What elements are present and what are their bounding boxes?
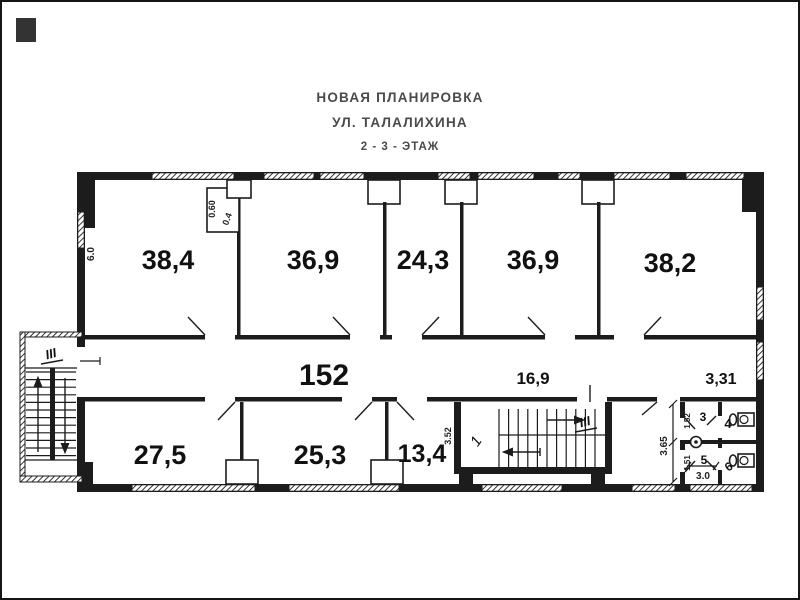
stair-pier <box>459 467 473 484</box>
door-swing <box>188 317 205 335</box>
stair-pier <box>591 467 605 484</box>
door-swing <box>397 402 414 420</box>
wc-block <box>669 400 756 486</box>
room-area-label: 27,5 <box>134 440 187 470</box>
stair-divider <box>50 368 55 460</box>
corridor-area-label: 152 <box>299 359 349 392</box>
pilaster <box>227 180 251 198</box>
floor-plan-page: НОВАЯ ПЛАНИРОВКА УЛ. ТАЛАЛИХИНА 2 - 3 - … <box>0 0 800 600</box>
room-area-label: 38,4 <box>142 245 195 275</box>
dimension-label: 1.52 <box>683 413 692 429</box>
landing-number: 1 <box>467 433 486 450</box>
door-swing <box>422 317 439 335</box>
room-area-label: 36,9 <box>287 245 340 275</box>
door-swing <box>355 402 372 420</box>
door-swing <box>707 416 716 425</box>
dimension-label: 3.52 <box>443 427 453 445</box>
window <box>686 173 744 179</box>
room-area-label: 13,4 <box>398 440 447 468</box>
corner-pier-top-right <box>742 180 756 212</box>
window <box>482 485 562 491</box>
window <box>478 173 534 179</box>
dimension-label: 3.65 <box>659 436 670 456</box>
labels: 38,4 36,9 24,3 36,9 38,2 152 16,9 3,31 2… <box>41 200 737 482</box>
wc-cell-number: 3 <box>700 410 707 424</box>
door-swing <box>528 317 545 335</box>
pilaster <box>226 460 258 484</box>
staircase-number: III <box>578 413 593 430</box>
room-area-label: 38,2 <box>644 248 697 278</box>
dimension-label: 6.0 <box>86 247 97 261</box>
scan-artifact <box>16 18 36 42</box>
dimension-line <box>669 400 677 486</box>
corner-pier-bottom-left <box>85 462 93 484</box>
window <box>438 173 470 179</box>
room-area-label: 36,9 <box>507 245 560 275</box>
window <box>320 173 364 179</box>
door-swing <box>218 402 235 420</box>
wc-cell-number: 5 <box>701 453 708 467</box>
toilet-icon <box>730 454 755 467</box>
window <box>690 485 752 491</box>
window <box>632 485 675 491</box>
window <box>132 485 255 491</box>
wc-hall-area-label: 3,31 <box>705 371 736 388</box>
dimension-label: 3.0 <box>696 471 710 482</box>
door-swing <box>642 402 657 415</box>
pilaster <box>445 180 477 204</box>
corridor-walls <box>80 335 756 402</box>
window <box>614 173 670 179</box>
floor-plan-drawing: 38,4 36,9 24,3 36,9 38,2 152 16,9 3,31 2… <box>2 2 800 600</box>
window <box>757 342 763 380</box>
pilaster <box>582 180 614 204</box>
door-swings <box>188 317 661 420</box>
window <box>78 212 84 248</box>
pilaster <box>368 180 400 204</box>
window <box>264 173 314 179</box>
room-area-label: 25,3 <box>294 440 347 470</box>
dimension-label: 0.60 <box>207 200 217 218</box>
door-swing <box>333 317 350 335</box>
stair-hall-area-label: 16,9 <box>516 369 549 388</box>
corner-pier-top-left <box>85 180 95 228</box>
toilet-icon <box>730 413 755 426</box>
window <box>289 485 399 491</box>
window <box>558 173 580 179</box>
window <box>152 173 234 179</box>
dimension-label: 1.51 <box>683 455 692 471</box>
wc-cell-number: 4 <box>724 416 732 431</box>
window <box>757 287 763 320</box>
door-swing <box>644 317 661 335</box>
staircase-number: III <box>44 345 59 362</box>
room-area-label: 24,3 <box>397 245 450 275</box>
